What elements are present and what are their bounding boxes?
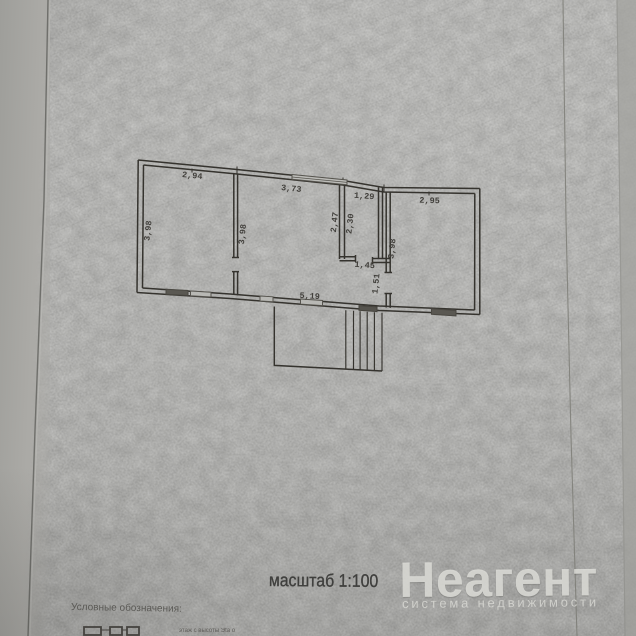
svg-text:этаж с высоты Эta о: этаж с высоты Эta о [179, 628, 236, 634]
